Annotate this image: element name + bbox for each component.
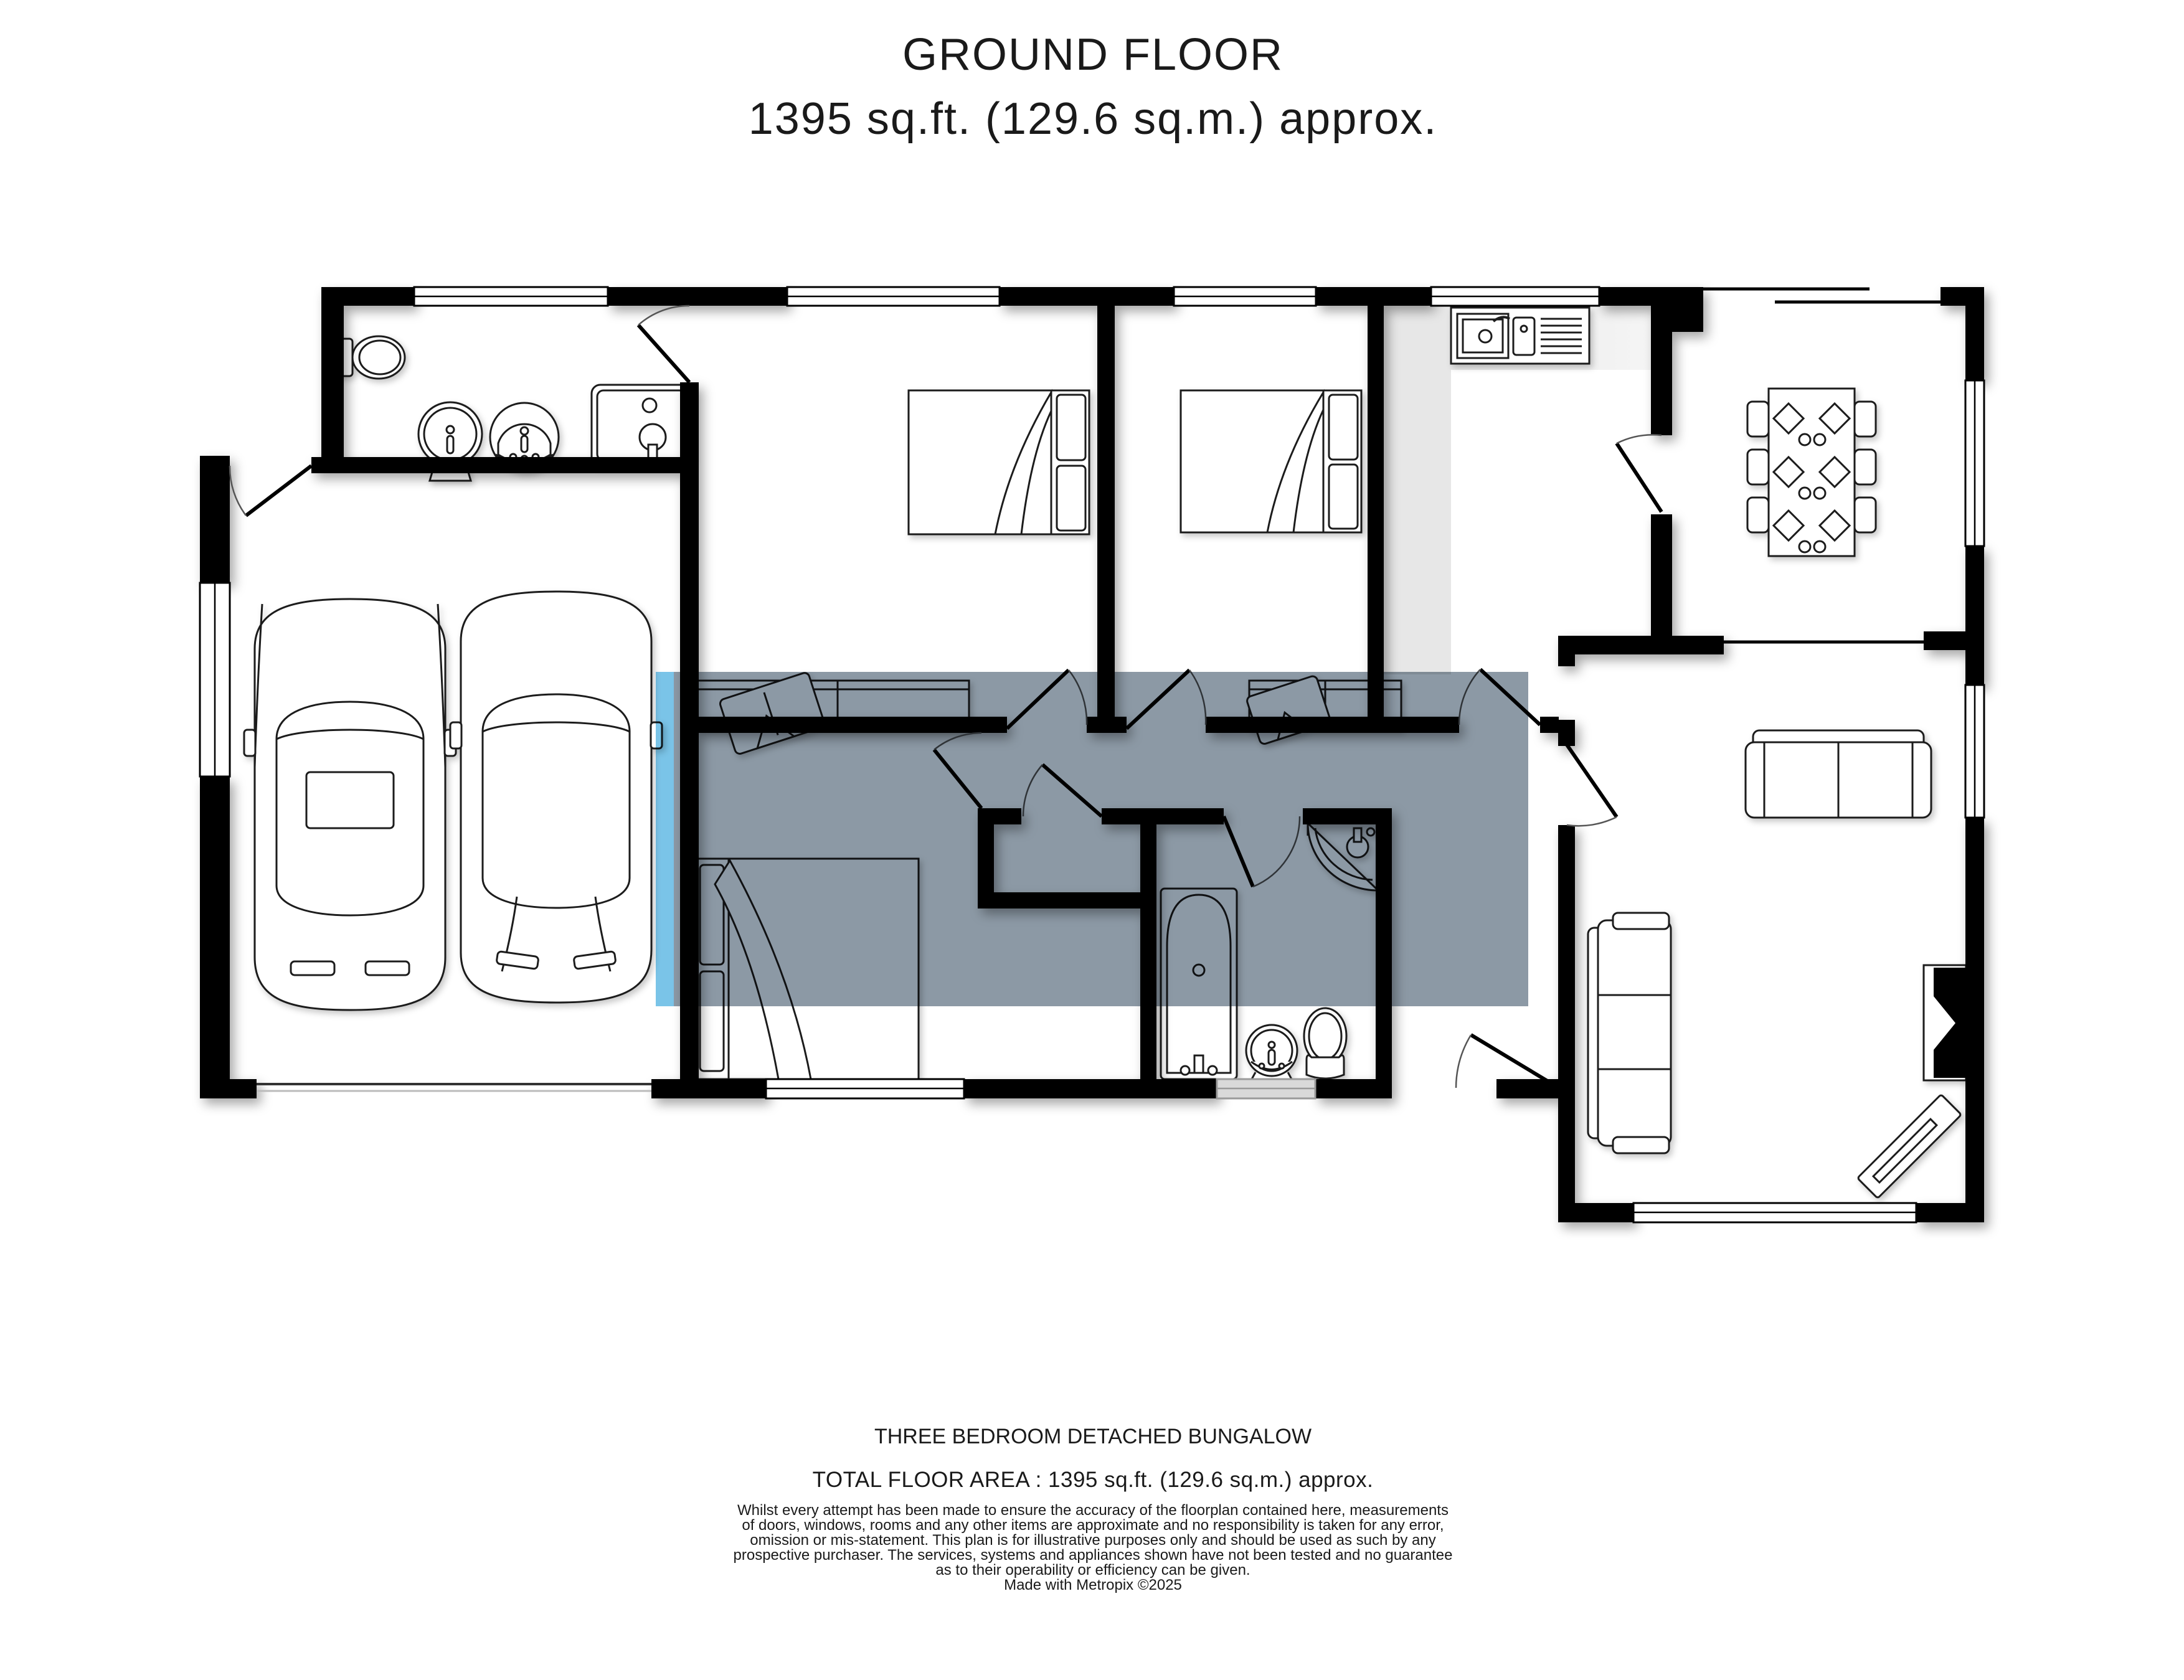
- svg-text:Whilst every attempt has been: Whilst every attempt has been made to en…: [737, 1502, 1449, 1519]
- svg-text:as to their operability or eff: as to their operability or efficiency ca…: [935, 1562, 1250, 1579]
- svg-text:Made with Metropix ©2025: Made with Metropix ©2025: [1004, 1577, 1182, 1593]
- svg-text:omission or mis-statement. Thi: omission or mis-statement. This plan is …: [750, 1532, 1435, 1549]
- svg-text:of doors, windows, rooms and a: of doors, windows, rooms and any other i…: [742, 1517, 1444, 1534]
- svg-text:GROUND FLOOR: GROUND FLOOR: [902, 30, 1283, 80]
- svg-text:TOTAL FLOOR AREA : 1395 sq.ft.: TOTAL FLOOR AREA : 1395 sq.ft. (129.6 sq…: [813, 1468, 1374, 1492]
- svg-text:1395 sq.ft. (129.6 sq.m.) appr: 1395 sq.ft. (129.6 sq.m.) approx.: [749, 94, 1438, 144]
- svg-text:prospective purchaser. The ser: prospective purchaser. The services, sys…: [734, 1547, 1453, 1564]
- svg-text:THREE BEDROOM DETACHED BUNGALO: THREE BEDROOM DETACHED BUNGALOW: [874, 1425, 1312, 1448]
